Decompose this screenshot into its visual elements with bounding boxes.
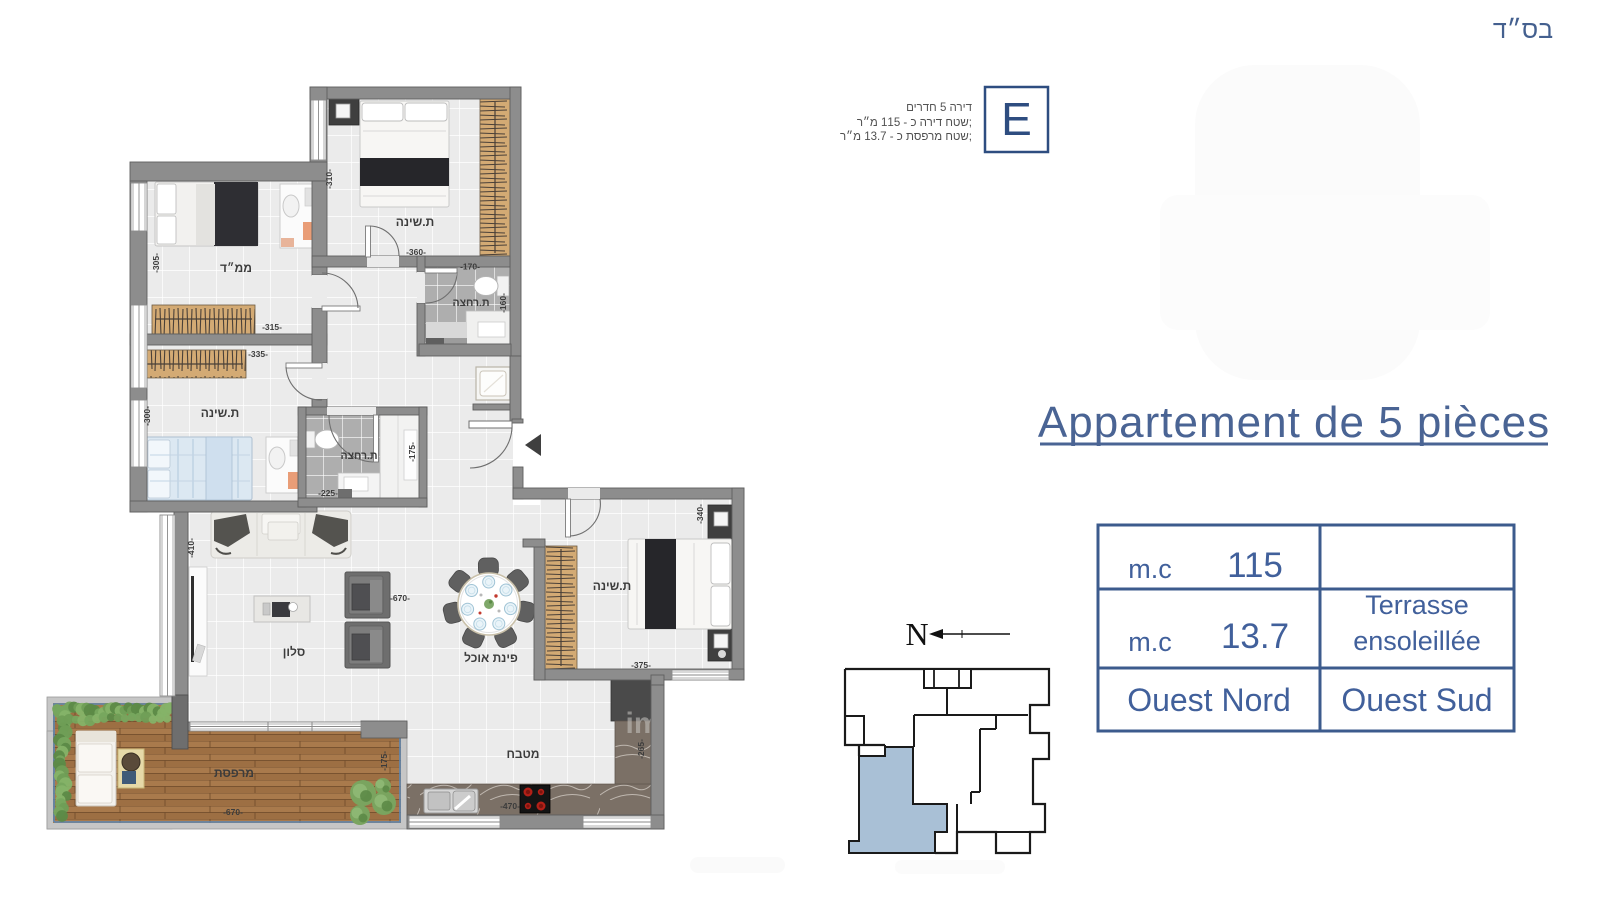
svg-text:ממ״ד: ממ״ד — [220, 261, 252, 275]
svg-text:-670-: -670- — [223, 807, 243, 817]
svg-text:ת.שינה: ת.שינה — [396, 215, 435, 229]
svg-text:Appartement de 5 pièces: Appartement de 5 pièces — [1038, 398, 1550, 447]
svg-text:-470-: -470- — [500, 801, 520, 811]
svg-text:שטח דירה כ - 115 מ״ר;: שטח דירה כ - 115 מ״ר; — [857, 116, 972, 129]
svg-text:-300-: -300- — [142, 406, 152, 426]
svg-text:דירה 5 חדרים: דירה 5 חדרים — [906, 102, 973, 114]
svg-text:-170-: -170- — [460, 262, 480, 272]
svg-text:-670-: -670- — [390, 593, 410, 603]
svg-text:N: N — [905, 616, 928, 652]
svg-text:E: E — [1001, 93, 1032, 145]
svg-text:ת.רחצה: ת.רחצה — [340, 450, 377, 462]
svg-text:-375-: -375- — [631, 660, 651, 670]
svg-text:-315-: -315- — [262, 322, 282, 332]
svg-text:שטח מרפסת כ - 13.7 מ״ר;: שטח מרפסת כ - 13.7 מ״ר; — [840, 130, 972, 143]
svg-text:m.c: m.c — [1128, 627, 1172, 657]
svg-text:115: 115 — [1227, 546, 1283, 585]
svg-text:-225-: -225- — [318, 488, 338, 498]
svg-text:-175-: -175- — [407, 442, 417, 462]
svg-text:ensoleillée: ensoleillée — [1353, 626, 1481, 656]
svg-text:-340-: -340- — [695, 504, 705, 524]
svg-text:מרפסת: מרפסת — [214, 766, 254, 780]
svg-text:-265-: -265- — [636, 739, 646, 759]
svg-text:ת.רחצה: ת.רחצה — [452, 297, 489, 309]
svg-text:סלון: סלון — [283, 645, 305, 659]
svg-text:Ouest Nord: Ouest Nord — [1127, 682, 1291, 718]
svg-text:-160-: -160- — [498, 293, 508, 313]
svg-text:13.7: 13.7 — [1221, 617, 1289, 656]
svg-text:מטבח: מטבח — [506, 747, 539, 761]
svg-text:ת.שינה: ת.שינה — [593, 579, 632, 593]
svg-text:-335-: -335- — [248, 349, 268, 359]
svg-text:פינת אוכל: פינת אוכל — [464, 651, 518, 665]
svg-text:-360-: -360- — [406, 247, 426, 257]
svg-text:-410-: -410- — [186, 538, 196, 558]
svg-text:Ouest Sud: Ouest Sud — [1341, 682, 1492, 718]
svg-text:-305-: -305- — [151, 253, 161, 273]
svg-text:-175-: -175- — [379, 751, 389, 771]
svg-text:בס״ד: בס״ד — [1493, 16, 1553, 44]
svg-text:ת.שינה: ת.שינה — [201, 406, 240, 420]
svg-text:-310-: -310- — [324, 169, 334, 189]
svg-text:m.c: m.c — [1128, 554, 1172, 584]
svg-text:Terrasse: Terrasse — [1365, 590, 1469, 620]
